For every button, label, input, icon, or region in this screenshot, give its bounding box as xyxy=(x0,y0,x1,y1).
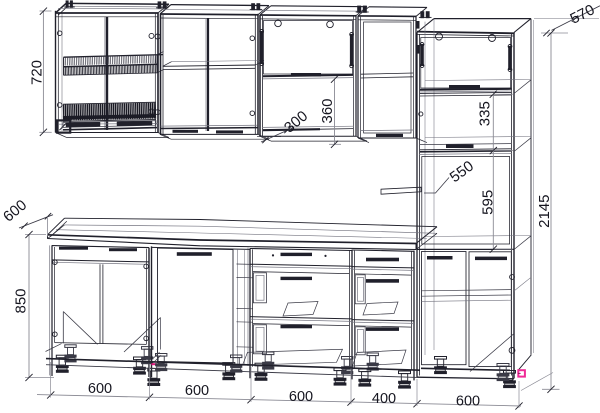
svg-text:600: 600 xyxy=(88,381,112,397)
svg-text:600: 600 xyxy=(185,383,209,399)
svg-text:335: 335 xyxy=(477,101,494,126)
svg-text:600: 600 xyxy=(289,389,313,405)
svg-text:600: 600 xyxy=(456,393,480,409)
svg-text:595: 595 xyxy=(480,190,497,215)
svg-text:2145: 2145 xyxy=(536,195,553,228)
svg-text:850: 850 xyxy=(13,288,30,313)
svg-text:400: 400 xyxy=(372,391,396,407)
svg-text:360: 360 xyxy=(319,98,336,123)
svg-text:720: 720 xyxy=(29,60,46,85)
